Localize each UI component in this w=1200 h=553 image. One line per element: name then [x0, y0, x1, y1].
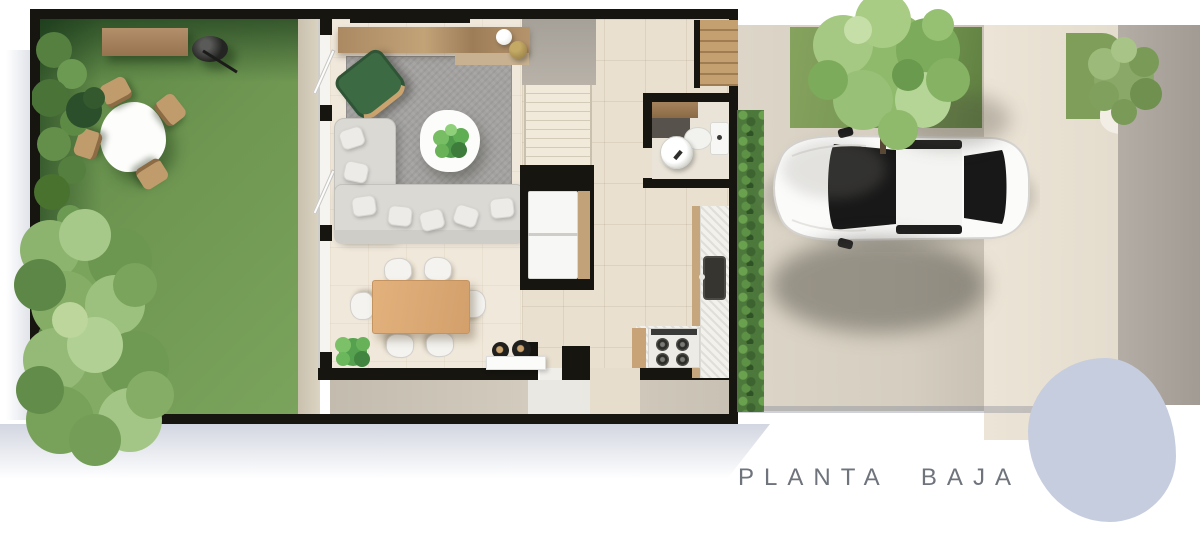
stove	[648, 328, 700, 368]
nook-wood-lining	[578, 191, 590, 279]
throw-pillow	[387, 205, 413, 227]
dining-chair	[385, 333, 414, 358]
corridor-tile	[590, 368, 640, 414]
entry-wood-steps	[700, 20, 738, 86]
stove-burner	[656, 338, 669, 351]
dining-chair	[349, 291, 374, 320]
dining-chair	[423, 256, 453, 282]
pendant-lamp-white	[496, 29, 512, 45]
patio-walkway	[528, 380, 590, 414]
kitchen-sink	[703, 256, 726, 300]
counter-wood-section	[632, 328, 646, 368]
coffee-table-plant	[426, 118, 476, 166]
toilet-flush-button	[717, 135, 722, 140]
sofa-backrest	[334, 230, 524, 244]
floor-plan-title: PLANTA BAJA	[738, 464, 1008, 492]
wall-mullion	[320, 105, 332, 121]
stove-burner	[676, 338, 689, 351]
kitchen-faucet	[699, 274, 705, 280]
wall-corner-b	[562, 346, 590, 380]
floor-plan-scene: PLANTA BAJA	[0, 0, 1200, 553]
stove-burner	[676, 353, 689, 366]
bathroom-door-gap	[643, 148, 652, 178]
wall-north-thick-segment	[350, 9, 470, 23]
throw-pillow	[351, 194, 378, 217]
garden-path	[298, 19, 320, 414]
stove-control-strip	[651, 329, 697, 335]
staircase	[524, 85, 592, 165]
dining-corner-plant	[330, 328, 376, 374]
appliance-divider	[528, 233, 578, 236]
dining-table	[372, 280, 470, 334]
throw-pillow	[489, 197, 515, 219]
pendant-lamp-brass	[509, 41, 527, 59]
driveway-tree	[788, 0, 1000, 168]
entry-hall-shadowed	[522, 19, 596, 85]
street-shrub	[1080, 28, 1168, 132]
tree-shadow	[770, 238, 985, 333]
side-table	[486, 356, 546, 370]
wall-mullion	[320, 225, 332, 241]
stove-burner	[656, 353, 669, 366]
bbq-grill	[192, 36, 228, 62]
garden-trees	[0, 190, 217, 470]
wall-mullion	[320, 19, 332, 35]
vanity-counter	[652, 102, 698, 118]
